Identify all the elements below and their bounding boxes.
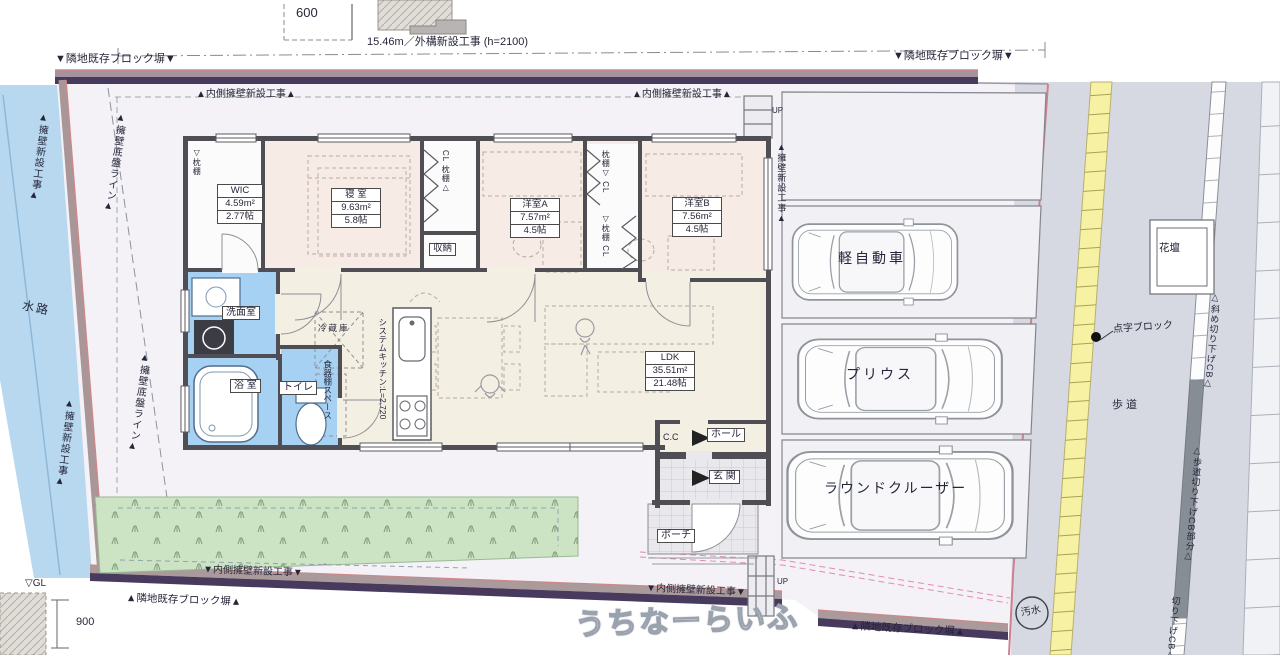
western-a-name: 洋室A [511,199,559,211]
boundary-top-left: ▼隣地既存ブロック塀▼ [55,53,176,66]
porch-label: ポーチ [657,529,695,543]
western-a-area: 7.57m² [511,211,559,224]
dim-900: 900 [76,616,94,629]
car-cruiser-label: ラウンドクルーザー [824,480,967,496]
ldk-area: 35.51m² [646,364,694,377]
wic-shelf-label: ▽枕棚 [192,148,201,208]
ldk-name: LDK [646,352,694,364]
parking-stall-1 [782,92,1046,200]
flower-bed [1150,220,1214,294]
kitchen-label: システムキッチン:L=2,720 [377,318,387,438]
bath-label: 浴 室 [230,379,261,393]
storage-label: 収納 [429,243,456,256]
wic-area: 4.59m² [218,197,262,210]
watermark: うちなーらいふ [574,592,799,644]
dim-600: 600 [296,6,318,21]
car-prius-label: プリウス [846,366,914,382]
up-top-label: UP [772,106,783,115]
boundary-top-right: ▼隣地既存ブロック塀▼ [893,50,1014,63]
cupboard-label: 食器棚スペース [322,360,332,436]
toilet-label: トイレ [279,381,317,395]
western-a-size: 4.5帖 [511,224,559,237]
washroom-label: 洗面室 [222,306,260,320]
washing-machine [194,320,234,356]
wic-name: WIC [218,185,262,197]
up-bottom-label: UP [777,577,788,586]
ldk-size: 21.48帖 [646,377,694,390]
sidewalk-road [1009,82,1280,655]
gl-section [0,593,46,655]
closet1-label: CL 枕棚△ [441,150,450,230]
hall-label: ホール [707,428,745,442]
bedroom-name: 寝 室 [332,189,380,201]
fridge-label: 冷蔵庫 [318,324,350,334]
retaining-parking-label: ▲擁壁新設工事▲ [776,142,786,257]
gl-label: ▽GL [25,578,46,590]
tactile-dot [1091,332,1101,342]
car-kei-label: 軽自動車 [838,250,906,266]
parking-area [744,92,1046,616]
inner-wall-top-left: ▲内側擁壁新設工事▲ [196,89,296,101]
kitchen-unit [393,308,431,440]
closet2-label: 枕棚▽ CL [601,150,610,210]
room-label-ldk: LDK 35.51m² 21.48帖 [645,351,695,391]
inner-wall-top-right: ▲内側擁壁新設工事▲ [632,89,732,101]
bedroom-size: 5.8帖 [332,214,380,227]
room-label-western-b: 洋室B 7.56m² 4.5帖 [672,197,722,237]
room-label-bedroom: 寝 室 9.63m² 5.8帖 [331,188,381,228]
cc-label: C.C [663,432,679,442]
western-b-name: 洋室B [673,198,721,210]
sidewalk-label: 歩道 [1112,399,1140,412]
wic-size: 2.77帖 [218,210,262,223]
closet3-label: ▽枕棚 CL [601,214,610,272]
flower-bed-label: 花壇 [1159,242,1180,254]
room-label-wic: WIC 4.59m² 2.77帖 [217,184,263,224]
frontage-label: 15.46m／外構新設工事 (h=2100) [367,36,528,49]
mid-closets [584,144,639,272]
room-label-western-a: 洋室A 7.57m² 4.5帖 [510,198,560,238]
western-b-area: 7.56m² [673,210,721,223]
entrance-label: 玄 関 [709,470,740,484]
western-b-size: 4.5帖 [673,223,721,236]
bedroom-area: 9.63m² [332,201,380,214]
site-plan-drawing: 600 15.46m／外構新設工事 (h=2100) ▼隣地既存ブロック塀▼ ▼… [0,0,1280,655]
